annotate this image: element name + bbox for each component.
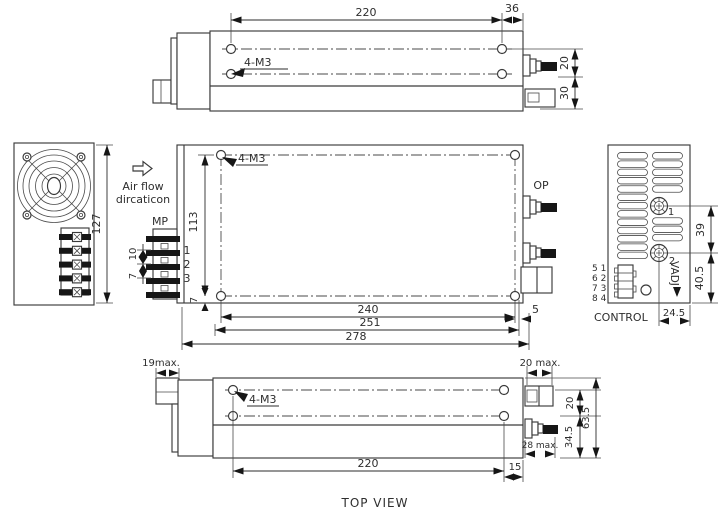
pin-row-2: 6 2 [592, 274, 606, 284]
dim-text-251: 251 [360, 316, 381, 329]
vadj-pot1-icon [651, 198, 668, 215]
dim-text-220-b: 220 [358, 457, 379, 470]
dim-text-30: 30 [558, 86, 571, 100]
pin-label-2: 2 [184, 258, 191, 271]
dim-text-10: 10 [128, 248, 139, 261]
dim-text-127: 127 [90, 214, 103, 235]
drawing-caption: TOP VIEW [340, 496, 408, 510]
end-cap-b [178, 380, 213, 456]
label-4m3: 4-M3 [244, 56, 271, 69]
pin-rows: 5 1 6 2 7 3 8 4 [592, 264, 607, 304]
mounting-hole [498, 70, 507, 79]
view-front [14, 143, 94, 305]
airflow-line1: Air flow [122, 180, 163, 193]
dim-text-220: 220 [356, 6, 377, 19]
left-connector-block-b [156, 378, 179, 404]
pin-row-4: 8 4 [592, 294, 607, 304]
pin-label-1: 1 [184, 244, 191, 257]
dim-text-20-b: 20 [565, 397, 576, 410]
left-flange [171, 38, 177, 104]
dim-text-278: 278 [346, 330, 367, 343]
mounting-hole [498, 45, 507, 54]
dim-text-240: 240 [358, 303, 379, 316]
label-vadj: VADJ [668, 261, 680, 286]
mounting-hole [227, 45, 236, 54]
chassis-body [210, 31, 523, 111]
left-connector-block [153, 80, 171, 103]
screw-icon [23, 211, 31, 219]
airflow-line2: dircaticon [116, 193, 170, 206]
dim-text-19max: 19max. [142, 358, 180, 369]
technical-drawing-page: 4-M3 220 36 [0, 0, 727, 519]
drawing-canvas: 4-M3 220 36 [0, 0, 727, 519]
dim-text-39: 39 [694, 223, 707, 237]
dim-text-7-pitch: 7 [128, 273, 139, 279]
label-mp: MP [152, 215, 168, 228]
label-4m3-bottom: 4-M3 [249, 393, 276, 406]
dim-text-28max: 28 max. [522, 441, 559, 451]
plan-body [177, 145, 523, 303]
end-cap [177, 33, 210, 109]
left-flange-b [172, 404, 178, 452]
dim-text-40-5: 40.5 [693, 266, 706, 291]
vadj-pot2-icon [651, 245, 668, 262]
pin-row-3: 7 3 [592, 284, 606, 294]
pot1-label: 1 [668, 207, 674, 218]
label-4m3-plan: 4-M3 [238, 152, 265, 165]
dim-text-5: 5 [532, 303, 539, 316]
dim-text-63-5: 63.5 [581, 407, 592, 429]
dim-text-24-5: 24.5 [663, 308, 685, 319]
screw-icon [77, 153, 85, 161]
dim-text-113: 113 [187, 212, 200, 233]
rear-connector-icon-b [525, 386, 553, 406]
terminal-block-front [59, 228, 91, 297]
panel-hole [641, 285, 651, 295]
screw-icon [77, 211, 85, 219]
dim-text-34-5: 34.5 [564, 426, 575, 448]
pin-row-1: 5 1 [592, 264, 606, 274]
label-op: OP [533, 179, 549, 192]
dim-text-7-edge: 7 [189, 297, 200, 303]
dim-text-15: 15 [509, 462, 522, 473]
output-connector-icon [525, 89, 555, 107]
pin-label-3: 3 [184, 272, 191, 285]
dim-text-36: 36 [505, 2, 519, 15]
control-connector-icon [615, 265, 637, 298]
dim-text-20max: 20 max. [520, 358, 561, 369]
dim-text-20: 20 [558, 56, 571, 70]
screw-icon [23, 153, 31, 161]
label-control: CONTROL [594, 311, 649, 324]
